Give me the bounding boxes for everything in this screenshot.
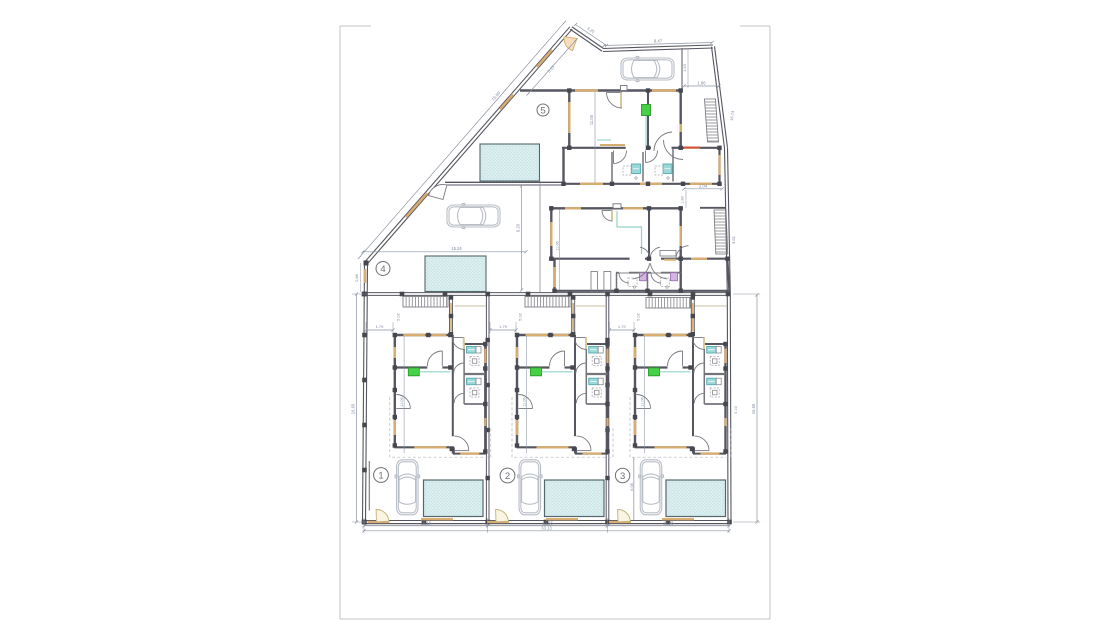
svg-text:11.00: 11.00 xyxy=(589,114,594,125)
svg-text:6.98: 6.98 xyxy=(630,483,634,490)
svg-text:10.16: 10.16 xyxy=(421,521,432,526)
svg-text:1.86: 1.86 xyxy=(697,81,706,86)
svg-text:8.47: 8.47 xyxy=(654,39,663,44)
svg-text:5: 5 xyxy=(540,105,545,116)
svg-text:5.02: 5.02 xyxy=(636,312,641,321)
svg-text:33.13: 33.13 xyxy=(541,526,552,531)
svg-text:1.53: 1.53 xyxy=(682,63,687,72)
svg-text:1.80: 1.80 xyxy=(681,196,685,203)
svg-text:4.61: 4.61 xyxy=(731,235,736,244)
svg-text:1.79: 1.79 xyxy=(376,324,385,329)
svg-text:0.88: 0.88 xyxy=(355,274,359,281)
svg-text:11.06: 11.06 xyxy=(522,397,526,406)
svg-text:5.02: 5.02 xyxy=(396,312,401,321)
svg-text:11.06: 11.06 xyxy=(640,397,644,406)
svg-text:3: 3 xyxy=(620,471,625,482)
svg-text:0.10: 0.10 xyxy=(734,406,738,413)
svg-text:5.02: 5.02 xyxy=(518,312,523,321)
svg-text:11.06: 11.06 xyxy=(400,397,404,406)
svg-text:11.06: 11.06 xyxy=(556,241,560,250)
svg-text:1.79: 1.79 xyxy=(499,324,508,329)
svg-text:2.04: 2.04 xyxy=(699,183,708,188)
svg-text:16.60: 16.60 xyxy=(351,403,356,414)
svg-text:9.20: 9.20 xyxy=(516,223,521,232)
svg-text:16.60: 16.60 xyxy=(751,403,756,414)
svg-text:2: 2 xyxy=(505,471,510,482)
svg-text:1: 1 xyxy=(378,470,383,481)
svg-text:12.98: 12.98 xyxy=(663,521,674,526)
svg-text:4: 4 xyxy=(380,264,385,275)
svg-text:1.79: 1.79 xyxy=(618,324,627,329)
svg-text:15.24: 15.24 xyxy=(451,246,462,251)
